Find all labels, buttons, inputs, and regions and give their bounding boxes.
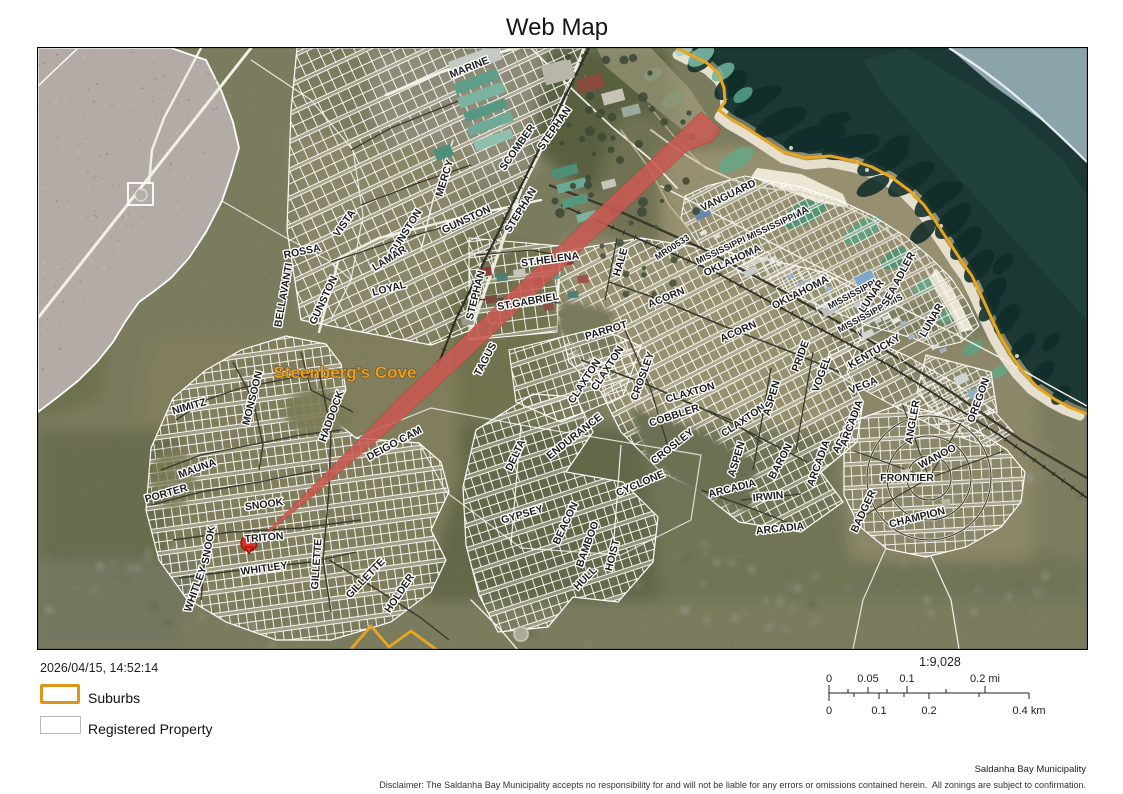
svg-text:0.05: 0.05 xyxy=(857,673,878,685)
svg-text:0: 0 xyxy=(826,705,832,717)
svg-text:0.1: 0.1 xyxy=(871,705,886,717)
svg-text:0.2 mi: 0.2 mi xyxy=(970,673,1000,685)
svg-text:0.4 km: 0.4 km xyxy=(1012,705,1045,717)
svg-text:0: 0 xyxy=(826,673,832,685)
svg-text:0.1: 0.1 xyxy=(899,673,914,685)
svg-text:0.2: 0.2 xyxy=(921,705,936,717)
svg-text:FRONTIER: FRONTIER xyxy=(880,472,934,484)
svg-text:Steenberg's Cove: Steenberg's Cove xyxy=(274,363,417,382)
